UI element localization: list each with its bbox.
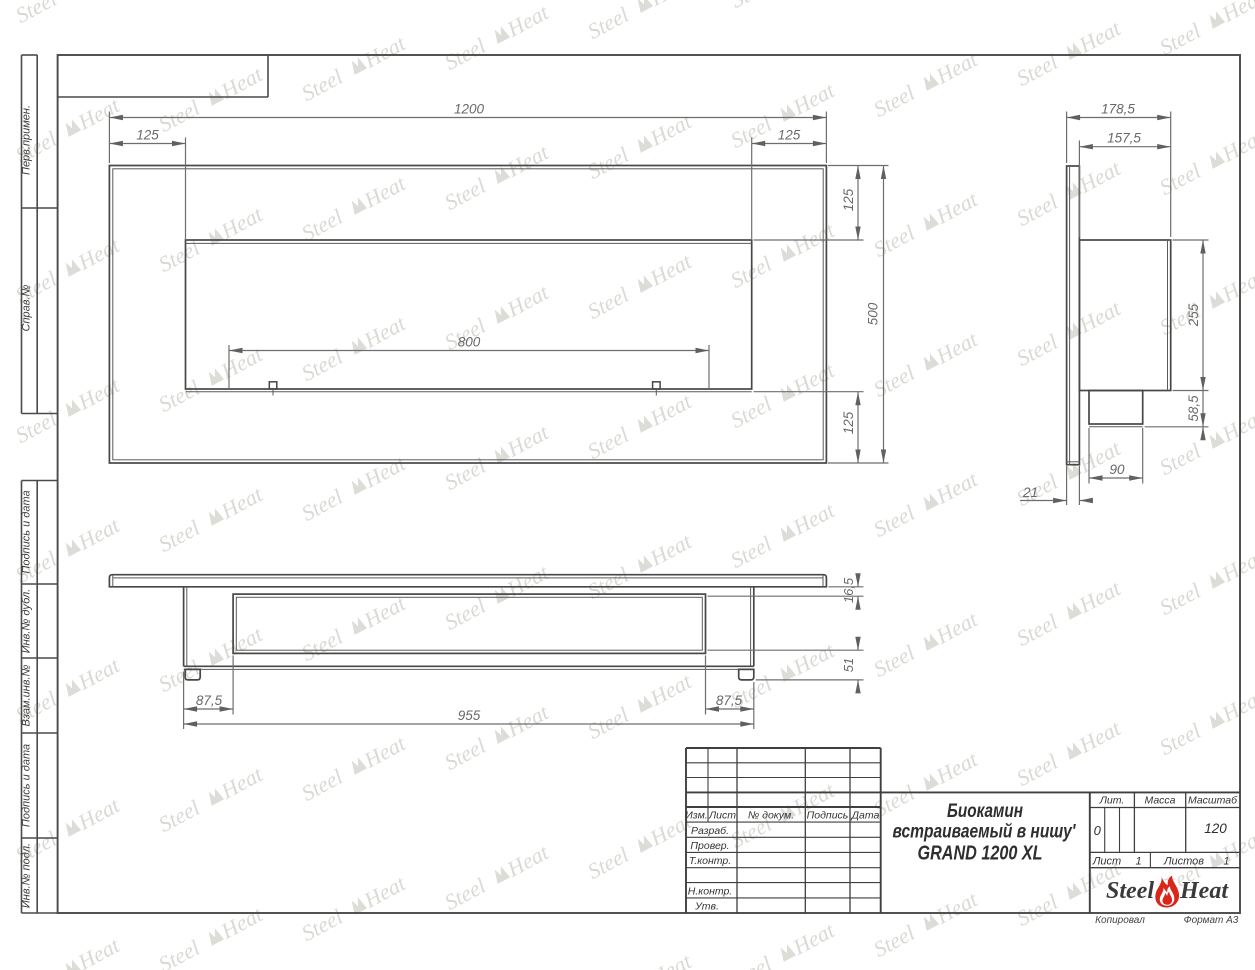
svg-text:16,5: 16,5 [841,577,856,603]
svg-text:Копировал: Копировал [1095,915,1145,926]
svg-text:125: 125 [778,128,801,143]
svg-text:1: 1 [1223,856,1229,868]
svg-text:1200: 1200 [454,102,485,117]
svg-text:Дата: Дата [851,810,880,822]
svg-text:90: 90 [1109,462,1125,477]
svg-text:120: 120 [1204,821,1227,836]
svg-text:Биокамин: Биокамин [947,801,1023,822]
svg-text:Heat: Heat [1179,878,1229,904]
svg-text:Н.контр.: Н.контр. [688,885,732,897]
svg-text:Т.контр.: Т.контр. [689,855,731,867]
svg-text:№ докум.: № докум. [748,810,794,822]
svg-text:Подпись и дата: Подпись и дата [21,744,33,827]
svg-text:125: 125 [841,411,856,434]
svg-text:Провер.: Провер. [690,840,729,852]
svg-text:Инв.№ подл.: Инв.№ подл. [21,843,33,908]
svg-text:21: 21 [1022,485,1038,500]
svg-text:0: 0 [1094,823,1102,838]
svg-text:Взам.инв.№: Взам.инв.№ [21,664,33,726]
svg-text:1: 1 [1136,856,1142,868]
svg-text:51: 51 [841,658,856,672]
svg-text:Лист: Лист [1092,856,1121,868]
svg-text:87,5: 87,5 [716,693,743,708]
svg-text:58,5: 58,5 [1186,395,1201,422]
svg-text:Листов: Листов [1163,856,1204,868]
svg-text:178,5: 178,5 [1101,102,1135,117]
svg-text:Лист: Лист [708,810,736,822]
svg-text:125: 125 [136,128,159,143]
svg-text:GRAND 1200 XL: GRAND 1200 XL [918,843,1043,865]
svg-text:Инв.№ дубл.: Инв.№ дубл. [21,589,33,654]
svg-text:Утв.: Утв. [694,901,719,913]
svg-text:Масса: Масса [1144,795,1175,807]
svg-text:955: 955 [458,708,481,723]
svg-text:Масштаб: Масштаб [1188,795,1238,807]
svg-text:87,5: 87,5 [196,693,223,708]
svg-text:500: 500 [866,302,881,325]
svg-text:Подпись: Подпись [807,810,849,822]
svg-text:800: 800 [458,335,481,350]
svg-text:157,5: 157,5 [1107,131,1141,146]
svg-text:Формат А3: Формат А3 [1184,915,1239,926]
svg-text:255: 255 [1186,303,1201,327]
svg-text:Лит.: Лит. [1099,795,1125,807]
svg-text:Подпись и дата: Подпись и дата [21,490,33,573]
svg-text:Справ.№: Справ.№ [21,284,33,331]
svg-text:Разраб.: Разраб. [691,825,729,837]
svg-text:встраиваемый в нишу': встраиваемый в нишу' [893,822,1077,843]
svg-text:125: 125 [841,188,856,211]
svg-text:Перв.примен.: Перв.примен. [21,105,33,175]
svg-text:Изм.: Изм. [685,810,707,822]
svg-text:Steel: Steel [1106,878,1154,904]
